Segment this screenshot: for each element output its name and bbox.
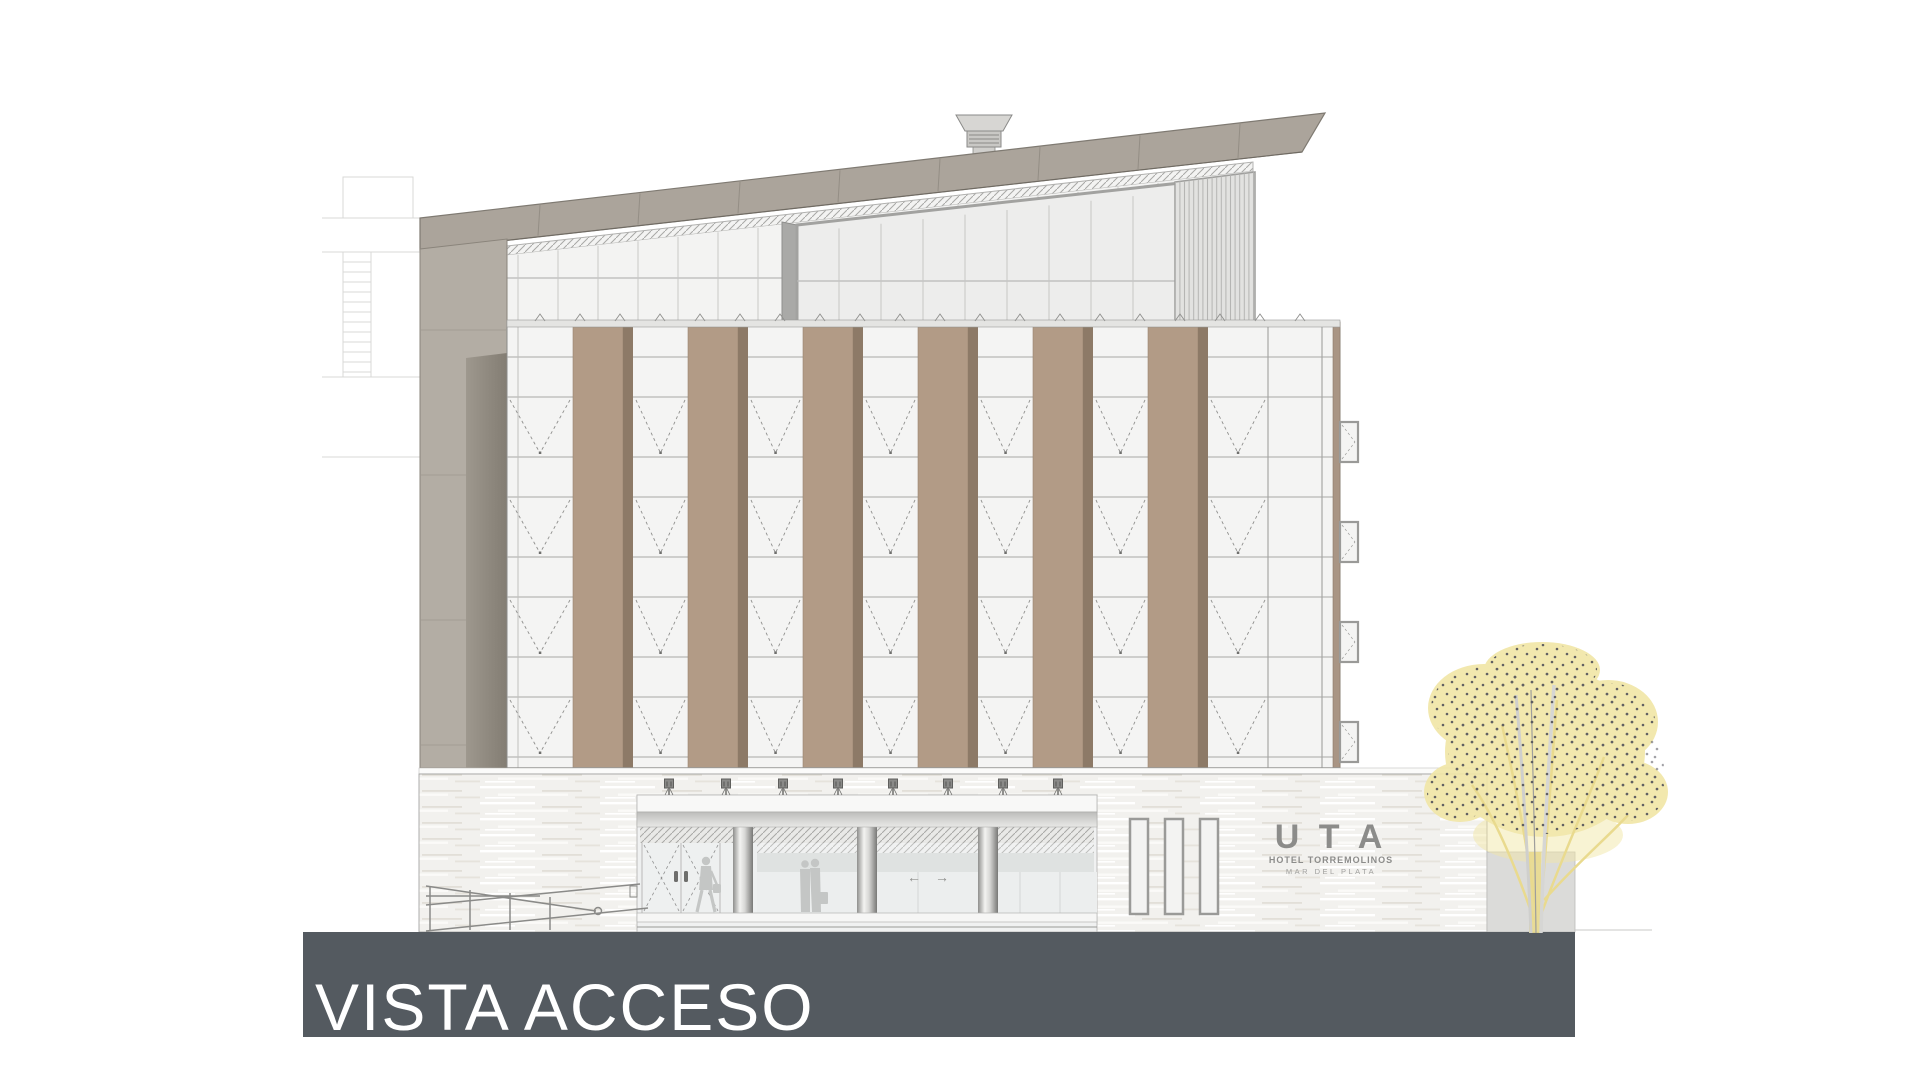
window-v-mark-dot bbox=[889, 452, 892, 455]
window-v-mark-dot bbox=[1237, 552, 1240, 555]
window-v-mark-dot bbox=[659, 652, 662, 655]
title-band: VISTA ACCESO bbox=[303, 932, 1575, 1044]
window-v-mark-dot bbox=[659, 752, 662, 755]
window-v-mark-dot bbox=[774, 752, 777, 755]
balcony-box bbox=[1340, 522, 1358, 562]
window-v-mark-dot bbox=[539, 752, 542, 755]
window-v-mark-dot bbox=[659, 552, 662, 555]
entrance-canopy bbox=[637, 795, 1097, 812]
podium-slot-windows bbox=[1130, 819, 1218, 914]
facade-pillar bbox=[573, 327, 623, 768]
side-wall-return-shadow bbox=[466, 353, 507, 768]
background-stair-outline bbox=[322, 177, 420, 457]
balcony-box bbox=[1340, 422, 1358, 462]
facade-pillar-shadow-edge bbox=[738, 327, 748, 768]
uta-sign: U T A HOTEL TORREMOLINOS MAR DEL PLATA bbox=[1269, 818, 1393, 876]
drawing-title: VISTA ACCESO bbox=[315, 970, 815, 1044]
facade-pillar-shadow-edge bbox=[1083, 327, 1093, 768]
glazed-box-corner-fold bbox=[782, 222, 797, 322]
brand-logo-text: U T A bbox=[1275, 818, 1388, 856]
window-v-mark-dot bbox=[1237, 752, 1240, 755]
window-v-mark-dot bbox=[1119, 452, 1122, 455]
facade-pillar bbox=[918, 327, 968, 768]
window-v-mark-dot bbox=[1119, 752, 1122, 755]
window-v-mark-dot bbox=[1004, 752, 1007, 755]
canopy-spotlight bbox=[999, 779, 1008, 795]
window-v-mark-dot bbox=[539, 452, 542, 455]
window-v-mark-dot bbox=[659, 452, 662, 455]
canopy-spotlight bbox=[889, 779, 898, 795]
door-arrow-left: ← bbox=[907, 869, 921, 885]
canopy-spotlight bbox=[722, 779, 731, 795]
slot-window bbox=[1200, 819, 1218, 914]
window-v-mark-dot bbox=[539, 552, 542, 555]
facade-pillar-shadow-edge bbox=[1198, 327, 1208, 768]
balcony-box bbox=[1340, 622, 1358, 662]
window-v-mark-dot bbox=[1237, 652, 1240, 655]
facade-pillar-shadow-edge bbox=[968, 327, 978, 768]
facade-pillar-shadow-edge bbox=[623, 327, 633, 768]
canopy-spotlight bbox=[944, 779, 953, 795]
balcony-box bbox=[1340, 722, 1358, 762]
canopy-spotlight bbox=[1054, 779, 1063, 795]
window-v-mark-dot bbox=[1004, 552, 1007, 555]
window-v-mark-dot bbox=[889, 652, 892, 655]
slot-window bbox=[1165, 819, 1183, 914]
louver-screen bbox=[1175, 172, 1255, 323]
side-wall bbox=[420, 239, 507, 768]
facade-pillar bbox=[1148, 327, 1198, 768]
facade-pillar bbox=[688, 327, 738, 768]
entrance-column bbox=[857, 827, 877, 913]
main-facade bbox=[507, 314, 1358, 768]
hotel-city-text: MAR DEL PLATA bbox=[1286, 867, 1376, 876]
elevation-drawing: ← → U T A HOTEL TORREMOLINOS MAR DEL PLA… bbox=[0, 0, 1920, 1080]
facade-pillar-shadow-edge bbox=[853, 327, 863, 768]
facade-pillar bbox=[803, 327, 853, 768]
canopy-spotlight bbox=[779, 779, 788, 795]
door-arrow-right: → bbox=[935, 869, 949, 885]
window-v-mark-dot bbox=[774, 452, 777, 455]
canopy-spotlight bbox=[665, 779, 674, 795]
briefcase bbox=[818, 892, 828, 904]
window-v-mark-dot bbox=[889, 752, 892, 755]
door-handle bbox=[674, 871, 678, 882]
door-handle bbox=[684, 871, 688, 882]
entrance-storefront: ← → bbox=[637, 779, 1097, 932]
window-v-mark-dot bbox=[774, 652, 777, 655]
canopy-spotlight bbox=[834, 779, 843, 795]
window-v-mark-dot bbox=[889, 552, 892, 555]
window-v-mark-dot bbox=[539, 652, 542, 655]
entrance-sill bbox=[637, 913, 1097, 922]
entrance-column bbox=[978, 827, 998, 913]
entrance-column bbox=[733, 827, 753, 913]
elevation-sheet: ← → U T A HOTEL TORREMOLINOS MAR DEL PLA… bbox=[0, 0, 1920, 1080]
window-v-mark-dot bbox=[1119, 652, 1122, 655]
window-v-mark-dot bbox=[1004, 652, 1007, 655]
slot-window bbox=[1130, 819, 1148, 914]
window-v-mark-dot bbox=[1237, 452, 1240, 455]
facade-pillar bbox=[1033, 327, 1083, 768]
roof-slab-edge bbox=[507, 320, 1340, 327]
hotel-name-text: HOTEL TORREMOLINOS bbox=[1269, 855, 1393, 865]
window-v-mark-dot bbox=[1004, 452, 1007, 455]
window-v-mark-dot bbox=[774, 552, 777, 555]
window-v-mark-dot bbox=[1119, 552, 1122, 555]
tree-foliage-speckles bbox=[1427, 644, 1665, 834]
